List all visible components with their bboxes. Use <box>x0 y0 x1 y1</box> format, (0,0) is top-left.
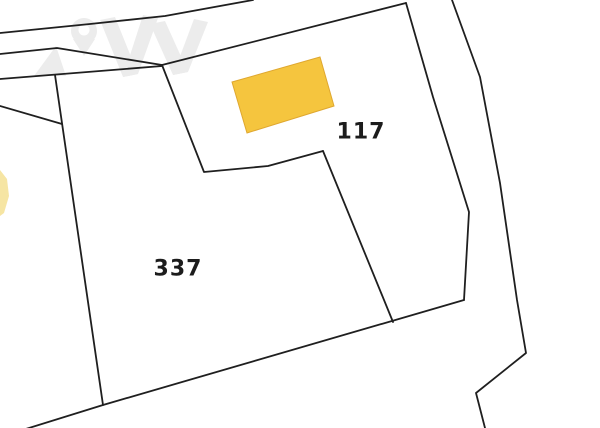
left-edge-boundary-stub <box>0 106 62 124</box>
watermark-pin-hole <box>79 25 90 36</box>
parcel-label-337: 337 <box>154 257 203 282</box>
road-east-edge-right <box>452 0 526 428</box>
building-layer <box>0 57 334 216</box>
building-clipped-left-edge <box>0 170 9 216</box>
watermark-layer <box>34 15 208 77</box>
road-west-edge-right <box>406 3 469 300</box>
watermark-logo-shape <box>173 19 208 75</box>
cadastral-map: 117337 <box>0 0 600 428</box>
building-parcel-117 <box>232 57 334 133</box>
boundary-layer <box>0 0 526 428</box>
parcel-label-117: 117 <box>337 120 386 145</box>
map-svg <box>0 0 600 428</box>
parcel-south-boundary <box>0 300 464 428</box>
road-upper-edge-top-left <box>0 0 253 33</box>
parcel-337-117-lower-boundary <box>323 151 393 322</box>
